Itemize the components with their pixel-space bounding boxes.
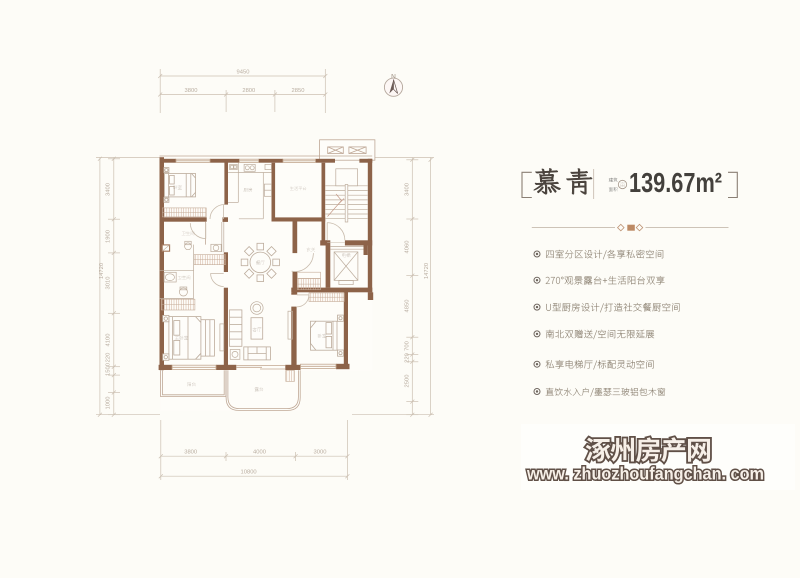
svg-text:1000: 1000 xyxy=(106,397,112,410)
svg-text:9450: 9450 xyxy=(237,70,250,76)
svg-text:4060: 4060 xyxy=(405,241,411,254)
svg-text:3010: 3010 xyxy=(106,277,112,290)
svg-text:2850: 2850 xyxy=(292,88,305,94)
svg-text:www. zhuozhoufangchan. com: www. zhuozhoufangchan. com xyxy=(526,464,764,484)
svg-text:2500: 2500 xyxy=(405,375,411,388)
svg-text:14720: 14720 xyxy=(424,263,430,279)
svg-text:1900: 1900 xyxy=(106,230,112,243)
svg-text:139.67m²: 139.67m² xyxy=(629,167,722,198)
svg-text:10800: 10800 xyxy=(241,470,257,476)
svg-text:14720: 14720 xyxy=(99,263,105,279)
svg-text:1500: 1500 xyxy=(106,363,112,376)
svg-text:3800: 3800 xyxy=(184,450,197,456)
svg-text:4100: 4100 xyxy=(106,334,112,347)
svg-text:3400: 3400 xyxy=(405,183,411,196)
svg-text:220: 220 xyxy=(405,353,411,363)
svg-text:3400: 3400 xyxy=(106,183,112,196)
svg-text:2800: 2800 xyxy=(242,88,255,94)
svg-text:220: 220 xyxy=(106,353,112,363)
svg-text:4850: 4850 xyxy=(405,300,411,313)
svg-text:3800: 3800 xyxy=(185,88,198,94)
svg-text:3000: 3000 xyxy=(314,450,327,456)
svg-text:700: 700 xyxy=(405,341,411,351)
svg-text:4000: 4000 xyxy=(253,450,266,456)
